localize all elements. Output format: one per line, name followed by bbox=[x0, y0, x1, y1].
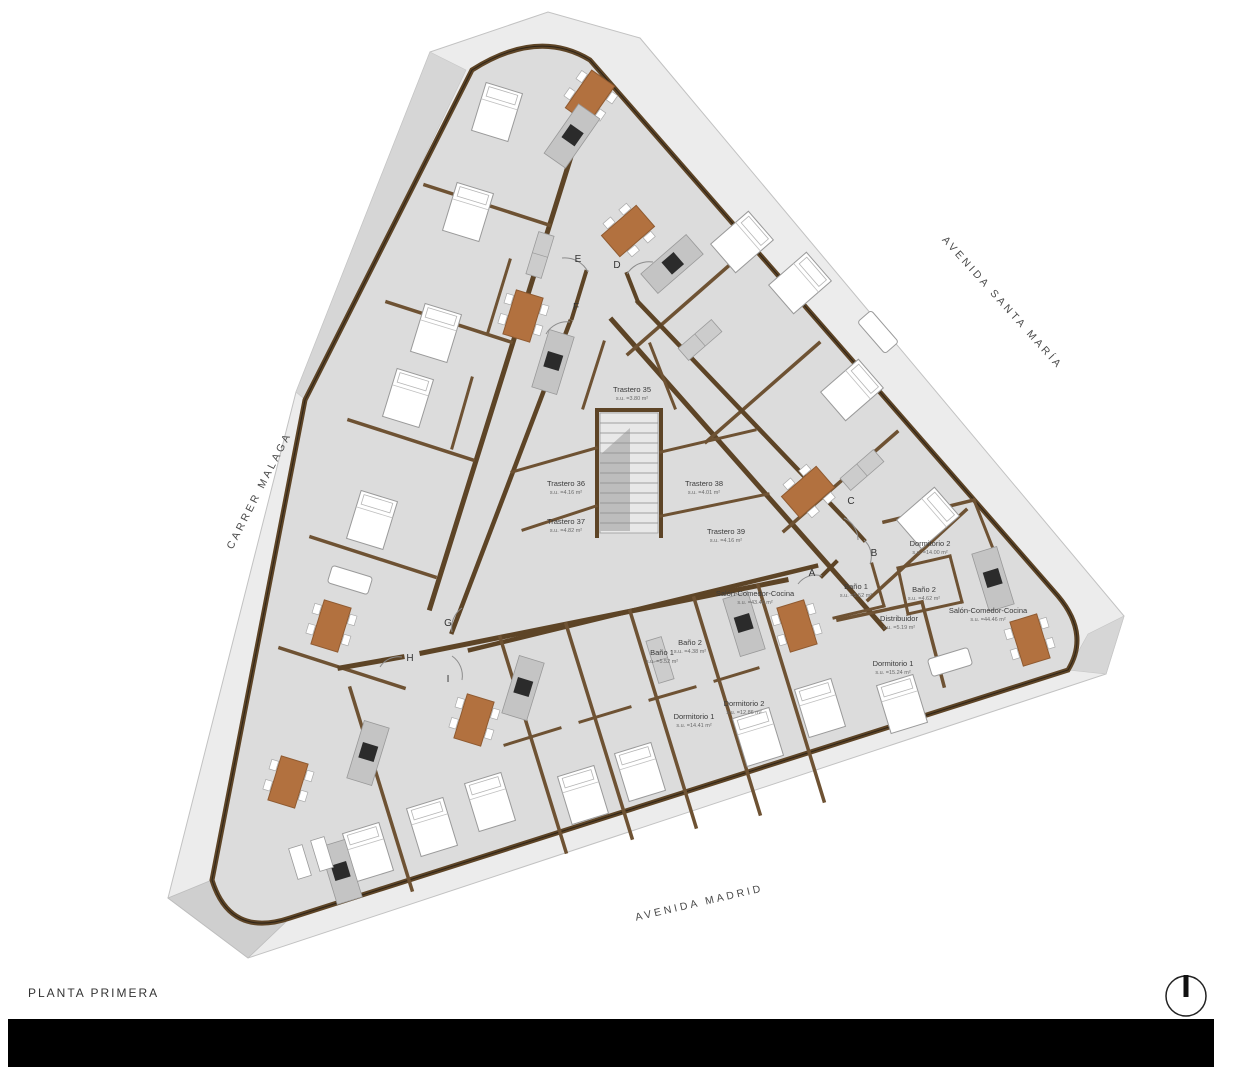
room-label: Baño 2 bbox=[678, 638, 702, 647]
door-marker-g: G bbox=[444, 618, 452, 629]
page-title: PLANTA PRIMERA bbox=[28, 986, 159, 1000]
door-marker-i: I bbox=[447, 674, 450, 685]
room-label: Dormitorio 1 bbox=[674, 712, 715, 721]
room-area: s.u. =4.16 m² bbox=[710, 538, 742, 544]
room-area: s.u. =5.19 m² bbox=[883, 625, 915, 631]
door-marker-a: A bbox=[809, 568, 816, 579]
room-label: Trastero 36 bbox=[547, 479, 585, 488]
room-label: Baño 2 bbox=[912, 585, 936, 594]
room-label: Baño 1 bbox=[844, 582, 868, 591]
room-area: s.u. =5.52 m² bbox=[646, 659, 678, 665]
room-label: Dormitorio 1 bbox=[873, 659, 914, 668]
title-block-redacted bbox=[8, 1019, 1214, 1067]
room-label: Salón-Comedor-Cocina bbox=[716, 589, 795, 598]
street-label-avenida-madrid: AVENIDA MADRID bbox=[634, 882, 764, 923]
room-area: s.u. =4.62 m² bbox=[908, 596, 940, 602]
room-area: s.u. =15.24 m² bbox=[875, 670, 910, 676]
room-label: Trastero 35 bbox=[613, 385, 651, 394]
door-marker-f: F bbox=[573, 302, 579, 313]
north-arrow-icon bbox=[1166, 975, 1206, 1016]
room-label: Distribuidor bbox=[880, 614, 918, 623]
door-marker-b: B bbox=[871, 548, 878, 559]
door-marker-e: E bbox=[575, 254, 582, 265]
floor-plan-drawing: E D F C B A G H I Trastero 35 s.u. =3.80… bbox=[0, 0, 1236, 1080]
street-label-avenida-santa-maria: AVENIDA SANTA MARÍA bbox=[939, 233, 1065, 371]
room-area: s.u. =3.80 m² bbox=[616, 396, 648, 402]
room-area: s.u. =43.46 m² bbox=[737, 600, 772, 606]
room-area: s.u. =4.16 m² bbox=[550, 490, 582, 496]
room-label: Dormitorio 2 bbox=[910, 539, 951, 548]
room-label: Salón-Comedor-Cocina bbox=[949, 606, 1028, 615]
room-label: Trastero 37 bbox=[547, 517, 585, 526]
door-marker-c: C bbox=[847, 496, 854, 507]
room-label: Trastero 39 bbox=[707, 527, 745, 536]
room-area: s.u. =5.52 m² bbox=[840, 593, 872, 599]
room-label: Baño 1 bbox=[650, 648, 674, 657]
door-marker-d: D bbox=[613, 260, 620, 271]
room-area: s.u. =44.46 m² bbox=[970, 617, 1005, 623]
room-area: s.u. =14.00 m² bbox=[912, 550, 947, 556]
staircase bbox=[600, 413, 658, 533]
room-area: s.u. =14.41 m² bbox=[676, 723, 711, 729]
room-label: Trastero 38 bbox=[685, 479, 723, 488]
room-area: s.u. =4.38 m² bbox=[674, 649, 706, 655]
door-marker-h: H bbox=[406, 653, 413, 664]
room-area: s.u. =4.01 m² bbox=[688, 490, 720, 496]
floor-plan-sheet: E D F C B A G H I Trastero 35 s.u. =3.80… bbox=[0, 0, 1236, 1080]
room-label: Dormitorio 2 bbox=[724, 699, 765, 708]
room-area: s.u. =4.82 m² bbox=[550, 528, 582, 534]
room-area: s.u. =12.86 m² bbox=[726, 710, 761, 716]
